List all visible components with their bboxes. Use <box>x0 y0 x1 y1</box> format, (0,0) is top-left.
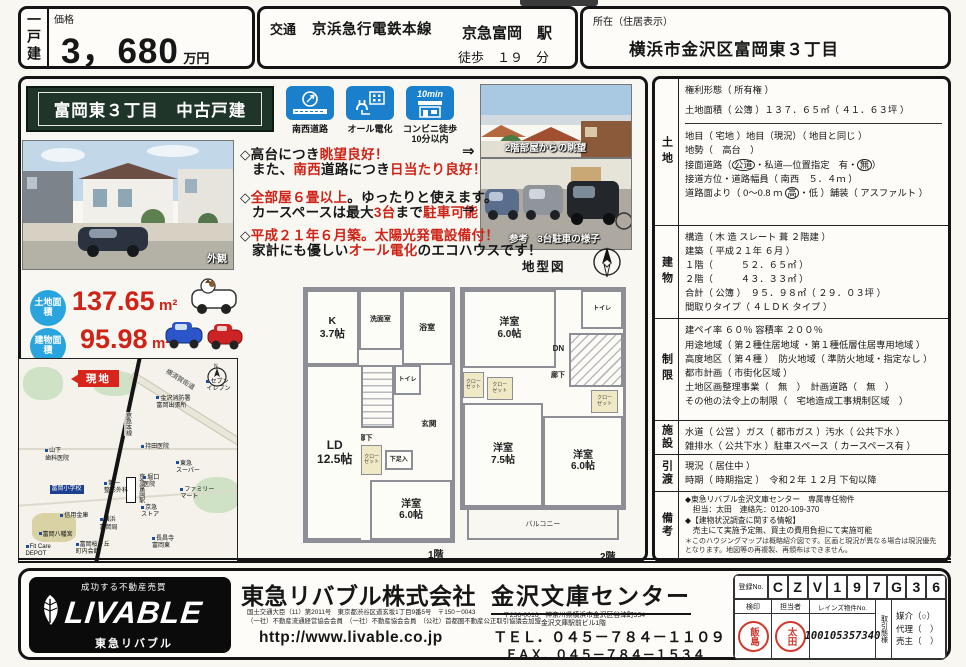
section-facilities: 施設 水道（ 公営 ）ガス（ 都市ガス ）汚水（ 公共下水 ） 雑排水（ 公共下… <box>655 420 948 454</box>
southwest-road-icon <box>286 86 334 120</box>
walk-minutes: 徒歩 １９ 分 <box>458 47 549 66</box>
registration-char: C <box>768 575 788 599</box>
land-road-width-row: 接道方位・道路幅員（ 南西 ５．４ｍ ） <box>685 172 942 186</box>
map-marker <box>60 514 63 517</box>
map-marker <box>176 461 179 464</box>
land-road-height-row: 道路面より（ 0～0.8 ｍ 高・低 ）舗装（ アスファルト ） <box>685 186 942 200</box>
exterior-photo: 外観 <box>22 140 234 270</box>
section-restrictions-title: 制限 <box>655 319 679 419</box>
land-right-row: 権利形態（ 所有権 ） <box>685 83 942 97</box>
map-label-school: 富岡小学校 <box>50 485 84 494</box>
map-marker <box>156 396 159 399</box>
mode-seller: 売主（ ） <box>896 635 941 648</box>
text: カースペースは最大 <box>252 205 374 220</box>
mode-brokerage: 媒介（○） <box>896 610 941 623</box>
building-1f-row: １階（ ５２．６５㎡ ） <box>685 258 942 272</box>
balcony: バルコニー <box>467 510 620 540</box>
registration-char: Z <box>788 575 808 599</box>
contact-row: 担当：太田 連絡先：0120-109-370 <box>685 505 942 516</box>
company-name: 東急リバブル株式会社 <box>241 577 476 611</box>
kenin-label: 検印 <box>735 600 771 614</box>
divider-rule <box>18 558 951 563</box>
floor-2f-body: 洋室 6.0帖 トイレ DN 廊下 クロー ゼット クロー ゼット クロー ゼッ… <box>460 287 626 510</box>
text: 家計にも優しい <box>252 243 349 258</box>
location-label: 所在（住居表示） <box>593 13 948 28</box>
section-notes-title: 備考 <box>655 492 679 559</box>
map-marker <box>76 543 79 546</box>
mode-agency: 代理（ ） <box>896 623 941 636</box>
location-map: 京急本線 京急富岡駅 横須賀街道 現地 N 富岡小学校 セブン イレブン 金沢消… <box>18 358 238 563</box>
registration-no-label: 登録No. <box>734 575 768 599</box>
map-label: 東急 スーパー <box>176 461 200 475</box>
leaf-icon <box>37 593 63 632</box>
registration-grid: 登録No. C Z V 1 9 7 G 3 6 検印 飯島 担当者 <box>733 574 947 660</box>
water-gas-row: 水道（ 公営 ）ガス（ 都市ガス ）汚水（ 公共下水 ） <box>685 425 942 439</box>
registration-char: G <box>887 575 907 599</box>
handover-time-row: 時期（ 時期指定 ） 令和２年 １２月 下旬以降 <box>685 473 942 487</box>
tanto-label: 担当者 <box>772 600 809 614</box>
view-caption: 2階部屋からの眺望 <box>505 140 586 154</box>
text: ◇ <box>240 228 251 243</box>
location-box: 所在（住居表示） 横浜市金沢区富岡東３丁目 <box>580 6 951 69</box>
map-marker <box>141 445 144 448</box>
plan-compass-icon <box>592 242 622 283</box>
building-2f-row: ２階（ ４３．３３㎡ ） <box>685 272 942 286</box>
all-electric-icon <box>346 86 394 120</box>
company-url: http://www.livable.co.jp <box>259 629 443 647</box>
traffic-label: 交通 <box>270 19 296 38</box>
selling-point-2-line-2: カースペースは最大3台まで駐車可能 <box>252 201 478 221</box>
livable-logo: 成功する不動産売買 LIVABLE 東急リバブル <box>29 577 231 653</box>
map-marker <box>39 532 42 535</box>
text: まで <box>396 205 424 220</box>
building-layout-row: 間取りタイプ（ ４ＬＤＫ タイプ ） <box>685 300 942 314</box>
section-land: 土地 権利形態（ 所有権 ） 土地面積（ 公簿 ）１３７．６５㎡（ ４１．６３坪… <box>655 79 948 225</box>
property-type-tab: 一戸建 <box>21 9 49 66</box>
all-electric-label: オール電化 <box>338 124 402 134</box>
site-tag: 現地 <box>78 369 119 387</box>
zoning-row: 用途地域（ 第２種住居地域 ・第１種低層住居専用地域 ） <box>685 338 942 352</box>
logo-tagline: 成功する不動産売買 <box>81 581 167 593</box>
text: 道路につき <box>321 162 390 177</box>
selling-point-3-line-2: 家計にも優しいオール電化のエコハウスです！ <box>252 239 542 259</box>
reins-number: 100105357340 <box>810 614 875 658</box>
map-label: ファミリー マート <box>180 487 214 501</box>
map-marker <box>104 482 107 485</box>
convenience-store-icon: 10min <box>406 86 454 120</box>
logo-company-sub: 東急リバブル <box>95 635 173 651</box>
company-license-line1: 国土交通大臣（11）第2011号 東京都渋谷区道玄坂1丁目9番5号 〒150－0… <box>247 607 475 616</box>
shoe-cabinet: 下足入 <box>385 450 413 470</box>
red-car <box>208 324 242 350</box>
closet-2f-b: クロー ゼット <box>487 377 513 401</box>
price-unit: 万円 <box>183 51 209 66</box>
room-bathroom: 浴室 <box>402 290 452 365</box>
text-red: 日当たり良好！ <box>390 162 487 177</box>
stairs-2f <box>569 333 623 387</box>
lot-diagram-caption: 地型図 <box>522 256 566 275</box>
section-building: 建物 構造（ 木 造 スレート 葺 ２階建 ） 建築（ 平成２１年 ６月 ） １… <box>655 225 948 319</box>
exclusive-listing-row: ◆東急リバブル金沢文庫センター 専属専任物件 <box>685 495 942 506</box>
registration-char: 7 <box>867 575 887 599</box>
parking-photo: 参考 3台駐車の様子 <box>480 158 632 250</box>
height-district-row: 高度地区（ 第４種 ） 防火地域（ 準防火地域・指定なし ） <box>685 352 942 366</box>
text-red: オール電化 <box>349 243 418 258</box>
city-planning-row: 都市計画（ 市街化区域 ） <box>685 366 942 380</box>
text: ◇ <box>240 190 251 205</box>
registration-char: 3 <box>906 575 926 599</box>
disclaimer-row: ＊このハウジングマップは概略紹介図です。区画と現況が異なる場合は現況優先となりま… <box>685 537 942 555</box>
section-building-title: 建物 <box>655 226 679 319</box>
land-category-row: 地目（ 宅地 ）地目（現況）（ 地目と同じ ） <box>685 129 942 143</box>
closet-1f: クロー ゼット <box>361 445 381 475</box>
map-marker <box>100 518 103 521</box>
coverage-ratio-row: 建ペイ率 ６０％ 容積率 ２００％ <box>685 323 942 337</box>
registration-char: 6 <box>926 575 946 599</box>
property-details-table: 土地 権利形態（ 所有権 ） 土地面積（ 公簿 ）１３７．６５㎡（ ４１．６３坪… <box>652 76 951 562</box>
room-western-2f-c: 洋室 6.0帖 <box>543 416 623 507</box>
room-toilet-2f: トイレ <box>581 290 623 329</box>
highway-label: 横須賀街道 <box>165 366 198 392</box>
room-western-1f: 洋室 6.0帖 <box>370 480 452 540</box>
room-kitchen: K 3.7帖 <box>306 290 359 365</box>
map-label: 横浜 富岡局 <box>100 517 118 531</box>
section-handover: 引渡 現況（ 居住中 ） 時期（ 時期指定 ） 令和２年 １２月 下旬以降 <box>655 454 948 491</box>
title-banner: 富岡東３丁目 中古戸建 <box>26 86 274 132</box>
branch-fax: ＦＡＸ．０４５－７８４－１５３４ <box>505 644 705 663</box>
drainage-parking-row: 雑排水（ 公共下水 ）駐車スペース（ カースペース有 ） <box>685 439 942 453</box>
inspection-detail-row: 売主にて実施予定無、買主の費用負担にて実施可能 <box>685 526 942 537</box>
land-topo-row: 地勢（ 高台 ） <box>685 143 942 157</box>
map-label: 持田医院 <box>141 444 169 451</box>
room-toilet-1f: トイレ <box>394 365 422 395</box>
location-value: 横浜市金沢区富岡東３丁目 <box>629 36 948 60</box>
tanto-stamp: 太田 <box>775 621 806 652</box>
land-area-value: 137.65 <box>72 286 155 316</box>
text-red: 南西 <box>293 162 321 177</box>
southwest-road-label: 南西道路 <box>278 124 342 134</box>
occupancy-row: 現況（ 居住中 ） <box>685 459 942 473</box>
car-illustrations <box>164 276 244 358</box>
real-estate-flyer: 一戸建 価格 3，680 万円 交通 京浜急行電鉄本線 京急富岡 駅 徒歩 １９… <box>0 0 966 667</box>
map-label: 山下 歯科医院 <box>45 448 69 462</box>
room-living-dining: LD 12.5帖 <box>306 365 361 540</box>
other-restrictions-row: その他の法令上の制限（ 宅地造成工事規制区域 ） <box>685 394 942 408</box>
building-area-value: 95.98 <box>80 324 148 354</box>
map-label: 富岡桜ヶ丘 町内会館 <box>76 542 110 556</box>
transaction-mode-label: 取引態様 <box>876 599 892 659</box>
svg-text:N: N <box>214 364 218 370</box>
footer-bar: 成功する不動産売買 LIVABLE 東急リバブル 東急リバブル株式会社 国土交通… <box>18 568 951 660</box>
stairs-1f <box>361 365 393 428</box>
map-label: 第一 整形外科 <box>104 481 128 495</box>
land-readjustment-row: 土地区画整理事業（ 無 ） 計画道路（ 無 ） <box>685 380 942 394</box>
text-red: 3台 <box>374 205 396 220</box>
access-box: 交通 京浜急行電鉄本線 京急富岡 駅 徒歩 １９ 分 <box>257 6 578 69</box>
price-value: 3，680 <box>61 32 179 71</box>
section-notes: 備考 ◆東急リバブル金沢文庫センター 専属専任物件 担当：太田 連絡先：0120… <box>655 491 948 559</box>
ten-min-badge: 10min <box>417 90 443 99</box>
section-land-title: 土地 <box>655 79 679 225</box>
exterior-caption: 外観 <box>207 250 227 265</box>
company-license-line2: （一社）不動産流通経営協会会員 （一社）不動産協会会員 （公社）首都圏不動産公正… <box>247 616 541 625</box>
arrow-to-parking-photo: ⇒ <box>462 200 475 218</box>
map-marker <box>45 449 48 452</box>
map-label: 富岡八幡宮 <box>39 532 73 539</box>
map-label: 京急 ストア <box>141 505 159 519</box>
blue-car <box>166 322 202 349</box>
banner-title: 富岡東３丁目 中古戸建 <box>54 102 247 120</box>
land-road-row: 接面道路（公道・私道―位置指定 有・無） <box>685 158 942 172</box>
room-western-2f-b: 洋室 7.5帖 <box>463 403 543 507</box>
rail-line: 京浜急行電鉄本線 <box>312 18 432 39</box>
building-built-row: 建築（ 平成２１年 ６月 ） <box>685 244 942 258</box>
convenience-store-label: コンビニ徒歩 10分以内 <box>398 124 462 145</box>
map-marker <box>141 506 144 509</box>
room-washroom: 洗面室 <box>359 290 403 350</box>
closet-2f-a: クロー ゼット <box>463 372 484 398</box>
map-green-patch <box>23 367 62 399</box>
registration-char: 1 <box>827 575 847 599</box>
map-label: 金沢消防署 富岡出張所 <box>156 396 190 410</box>
logo-wordmark: LIVABLE <box>63 595 204 631</box>
station-name: 京急富岡 駅 <box>462 22 552 43</box>
building-structure-row: 構造（ 木 造 スレート 葺 ２階建 ） <box>685 230 942 244</box>
registration-char: V <box>808 575 828 599</box>
map-label: セブン イレブン <box>206 379 230 393</box>
map-label: Fit Care DEPOT <box>26 544 51 558</box>
hallway-label-2f: 廊下 <box>551 370 565 380</box>
section-handover-title: 引渡 <box>655 455 679 491</box>
map-label: 信用金庫 <box>60 513 88 520</box>
section-facilities-title: 施設 <box>655 421 679 454</box>
reins-label: レインズ物件No. <box>810 600 875 614</box>
map-label: 長昌寺 富岡東 <box>152 536 174 550</box>
entrance-label: 玄関 <box>421 418 436 429</box>
inspection-header-row: ◆【建物状況調査に関する情報】 <box>685 516 942 527</box>
map-marker <box>26 545 29 548</box>
closet-2f-c: クロー ゼット <box>591 390 618 414</box>
floor-plan-2f: 洋室 6.0帖 トイレ DN 廊下 クロー ゼット クロー ゼット クロー ゼッ… <box>460 287 626 540</box>
dog-car <box>192 279 236 314</box>
building-total-row: 合計（ 公簿 ） ９５．９８㎡（ ２９．０３坪 ） <box>685 286 942 300</box>
land-area-row: 土地面積（ 公簿 ）１３７．６５㎡（ ４１．６３坪 ） <box>685 103 942 124</box>
rail-name-label: 京急本線 <box>124 412 133 436</box>
stairs-dn-label: DN <box>553 344 565 353</box>
kenin-stamp: 飯島 <box>738 621 769 652</box>
text: また、 <box>252 162 293 177</box>
price-box: 一戸建 価格 3，680 万円 <box>18 6 255 69</box>
section-restrictions: 制限 建ペイ率 ６０％ 容積率 ２００％ 用途地域（ 第２種住居地域 ・第１種低… <box>655 318 948 419</box>
map-label: 堀口 医院 <box>143 475 159 489</box>
view-photo: 2階部屋からの眺望 <box>480 84 632 158</box>
selling-point-1-line-2: また、南西道路につき日当たり良好！ <box>252 158 487 178</box>
map-marker <box>152 537 155 540</box>
map-marker <box>143 476 146 479</box>
map-marker <box>180 488 183 491</box>
registration-char: 9 <box>847 575 867 599</box>
floor-plan-1f: K 3.7帖 洗面室 浴室 トイレ UP 廊下 玄関 クロー ゼット 下足入 L… <box>303 287 455 543</box>
site-tag-pointer <box>71 374 79 384</box>
land-area-circle: 土地面積 <box>30 290 66 326</box>
room-western-2f-a: 洋室 6.0帖 <box>463 290 556 368</box>
